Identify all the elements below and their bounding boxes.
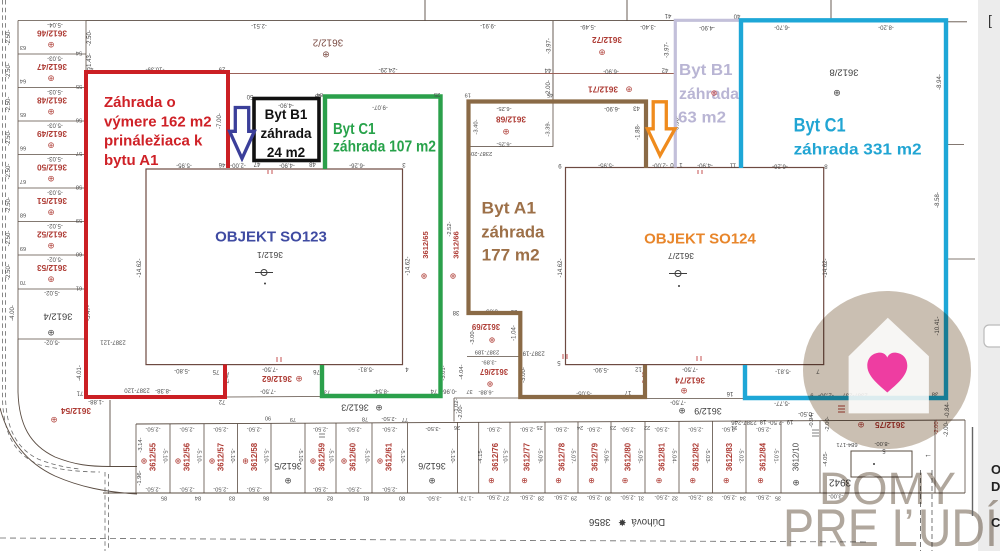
svg-text:-6.70-: -6.70- <box>774 24 790 30</box>
svg-text:34: 34 <box>740 495 746 501</box>
svg-text:-2.50-: -2.50- <box>145 486 160 492</box>
svg-text:-5.04-: -5.04- <box>671 448 677 463</box>
svg-text:-5.77-: -5.77- <box>774 400 790 406</box>
svg-text:3612/59: 3612/59 <box>318 442 327 471</box>
svg-text:3612/9: 3612/9 <box>694 406 722 416</box>
svg-text:85: 85 <box>161 495 167 501</box>
svg-text:35: 35 <box>775 495 781 501</box>
svg-text:-2.50-: -2.50- <box>6 264 12 280</box>
svg-text:⊕: ⊕ <box>242 457 249 466</box>
svg-text:-2.50-: -2.50- <box>313 486 328 492</box>
svg-text:3612/61: 3612/61 <box>385 442 394 471</box>
svg-text:3612/46: 3612/46 <box>37 29 67 39</box>
svg-text:75: 75 <box>212 368 219 374</box>
svg-text:-1.04-: -1.04- <box>512 325 518 341</box>
svg-text:⊕: ⊕ <box>689 476 696 485</box>
svg-text:Záhrada o: Záhrada o <box>104 94 176 111</box>
svg-text:Dúhová ✸ 3856: Dúhová ✸ 3856 <box>588 516 665 527</box>
svg-text:3612/10: 3612/10 <box>792 442 801 471</box>
svg-text:3612/83: 3612/83 <box>725 442 734 471</box>
svg-text:3612/81: 3612/81 <box>658 442 667 471</box>
svg-text:64: 64 <box>20 78 26 84</box>
svg-text:3612/47: 3612/47 <box>37 62 67 72</box>
svg-text:-2.00-: -2.00- <box>230 162 246 168</box>
svg-text:záhrada: záhrada <box>481 223 545 242</box>
svg-text:-2.52-: -2.52- <box>447 221 453 236</box>
svg-text:67: 67 <box>20 178 26 184</box>
svg-text:3612/60: 3612/60 <box>349 442 358 471</box>
svg-text:-2.50-: -2.50- <box>213 486 228 492</box>
svg-text:-8.38-: -8.38- <box>155 387 171 393</box>
svg-text:26: 26 <box>454 424 460 430</box>
svg-text:Byt C1: Byt C1 <box>794 116 846 137</box>
svg-text:57: 57 <box>76 150 82 156</box>
svg-text:záhrada 331 m2: záhrada 331 m2 <box>794 142 922 159</box>
svg-text:3612/52: 3612/52 <box>37 230 67 240</box>
svg-text:3612/71: 3612/71 <box>588 85 618 95</box>
svg-text:-5.81-: -5.81- <box>358 366 374 372</box>
svg-text:⊕: ⊕ <box>502 127 509 137</box>
svg-text:3612/48: 3612/48 <box>37 96 67 106</box>
svg-text:-5.10-: -5.10- <box>399 448 405 463</box>
svg-text:Byt A1: Byt A1 <box>482 199 537 218</box>
svg-text:38: 38 <box>452 309 459 315</box>
svg-text:24 m2: 24 m2 <box>267 145 305 160</box>
svg-text:-8.94-: -8.94- <box>937 74 943 90</box>
svg-text:-5.81-: -5.81- <box>775 368 791 374</box>
svg-text:⊕: ⊕ <box>141 457 148 466</box>
svg-text:-2.50-: -2.50- <box>620 494 635 500</box>
svg-text:37: 37 <box>466 388 472 394</box>
svg-text:-3.40-: -3.40- <box>473 119 479 134</box>
svg-text:-2.51-: -2.51- <box>251 22 267 28</box>
svg-text:19: 19 <box>465 91 471 97</box>
svg-text:-5.01-: -5.01- <box>773 448 779 463</box>
svg-text:-5.02-: -5.02- <box>44 289 60 295</box>
svg-text:C: C <box>991 515 1000 530</box>
svg-text:-5.03-: -5.03- <box>47 88 63 94</box>
svg-text:-2.50-: -2.50- <box>247 425 262 431</box>
svg-text:3612/56: 3612/56 <box>183 442 192 471</box>
svg-text:-2.50-: -2.50- <box>756 425 771 431</box>
svg-text:44: 44 <box>544 67 551 73</box>
svg-text:3612/80: 3612/80 <box>624 442 633 471</box>
svg-text:⊕: ⊕ <box>47 174 54 184</box>
svg-text:-2.50-: -2.50- <box>6 164 12 180</box>
svg-text:⊕: ⊕ <box>792 478 799 488</box>
svg-text:-5.10-: -5.10- <box>196 448 202 463</box>
svg-text:-2.50-: -2.50- <box>6 231 12 247</box>
svg-text:-2.50-: -2.50- <box>381 415 396 421</box>
svg-text:-3.40-: -3.40- <box>640 23 656 29</box>
svg-text:-4.90-: -4.90- <box>279 162 295 168</box>
svg-text:-2.50-: -2.50- <box>346 486 361 492</box>
svg-text:-4.01-: -4.01- <box>77 365 83 381</box>
svg-text:3612/77: 3612/77 <box>523 443 532 471</box>
svg-text:55: 55 <box>76 83 82 89</box>
svg-text:prináležiaca k: prináležiaca k <box>104 133 203 150</box>
svg-text:-1.96-: -1.96- <box>137 470 143 485</box>
svg-text:⊕: ⊕ <box>487 380 494 389</box>
svg-text:63: 63 <box>20 44 26 50</box>
svg-text:⊕: ⊕ <box>375 403 382 413</box>
svg-text:⊕: ⊕ <box>209 457 216 466</box>
svg-text:⊕: ⊕ <box>680 386 687 396</box>
svg-text:⊕: ⊕ <box>588 476 595 485</box>
svg-text:41: 41 <box>664 12 671 18</box>
svg-text:-5.90-: -5.90- <box>593 366 609 372</box>
svg-text:⊕: ⊕ <box>47 40 54 50</box>
svg-text:3612/4: 3612/4 <box>43 311 72 322</box>
svg-text:69: 69 <box>20 245 26 251</box>
svg-text:⊕: ⊕ <box>47 328 54 338</box>
svg-text:-14.62-: -14.62- <box>823 258 829 277</box>
svg-text:⊕: ⊕ <box>428 476 435 486</box>
svg-text:23: 23 <box>610 424 616 430</box>
svg-text:-5.09-: -5.09- <box>537 448 543 463</box>
svg-text:-2.00-: -2.00- <box>652 162 668 168</box>
svg-text:-5.05-: -5.05- <box>576 390 592 396</box>
svg-text:60: 60 <box>76 251 82 257</box>
svg-text:-14.62-: -14.62- <box>558 258 564 277</box>
svg-text:3612/54: 3612/54 <box>61 406 91 416</box>
svg-text:3612/65: 3612/65 <box>421 231 430 259</box>
svg-text:-6.25-: -6.25- <box>496 105 511 111</box>
svg-text:-2.50-: -2.50- <box>554 425 569 431</box>
svg-text:25: 25 <box>536 424 542 430</box>
svg-text:177 m2: 177 m2 <box>482 246 540 265</box>
svg-text:-3.50-: -3.50- <box>426 494 441 500</box>
svg-text:90: 90 <box>265 415 271 421</box>
svg-text:-2.50-: -2.50- <box>587 494 602 500</box>
svg-text:21: 21 <box>731 424 737 430</box>
svg-text:⊕: ⊕ <box>656 476 663 485</box>
svg-text:-2.50-: -2.50- <box>6 197 12 213</box>
svg-text:77: 77 <box>402 416 408 422</box>
svg-text:3612/57: 3612/57 <box>217 443 226 471</box>
svg-text:3612/58: 3612/58 <box>250 442 259 471</box>
svg-text:-2.50-: -2.50- <box>382 425 397 431</box>
svg-text:O: O <box>991 462 1000 477</box>
svg-text:-2.50-: -2.50- <box>487 425 502 431</box>
svg-text:66: 66 <box>20 145 26 151</box>
svg-text:2387-189: 2387-189 <box>475 349 500 355</box>
svg-text:-5.06-: -5.06- <box>603 448 609 463</box>
svg-text:-7.50-: -7.50- <box>670 399 686 405</box>
svg-text:3612/7: 3612/7 <box>668 251 694 261</box>
svg-text:71: 71 <box>76 390 83 396</box>
svg-text:⊕: ⊕ <box>284 476 291 486</box>
svg-text:⊕: ⊕ <box>625 85 632 95</box>
svg-text:3612/62: 3612/62 <box>262 374 292 384</box>
svg-text:-3.14-: -3.14- <box>138 437 144 452</box>
svg-text:82: 82 <box>327 495 333 501</box>
svg-text:-2.50-: -2.50- <box>6 63 12 79</box>
svg-text:-5.80-: -5.80- <box>174 367 190 373</box>
svg-text:-6.25-: -6.25- <box>496 141 511 147</box>
svg-text:-5.10-: -5.10- <box>162 448 168 463</box>
svg-text:-8.54-: -8.54- <box>373 388 389 394</box>
svg-text:⊕: ⊕ <box>322 50 330 60</box>
svg-text:40: 40 <box>733 13 740 19</box>
svg-text:-5.02-: -5.02- <box>47 222 63 228</box>
svg-text:záhrada: záhrada <box>260 126 312 141</box>
svg-text:-6.90-: -6.90- <box>604 105 620 111</box>
svg-text:⊕: ⊕ <box>488 476 495 485</box>
svg-text:-0.96-: -0.96- <box>441 388 457 394</box>
svg-text:-2.50-: -2.50- <box>6 130 12 146</box>
svg-text:⊕: ⊕ <box>598 48 605 58</box>
svg-text:⊕: ⊕ <box>310 457 317 466</box>
svg-text:3612/3: 3612/3 <box>341 403 369 413</box>
svg-text:-2.50-: -2.50- <box>179 486 194 492</box>
svg-text:-2.50-: -2.50- <box>382 486 397 492</box>
svg-text:70: 70 <box>20 279 26 285</box>
svg-text:-7.50-: -7.50- <box>260 388 276 394</box>
svg-text:-6.90-: -6.90- <box>603 68 619 74</box>
svg-text:3612/2: 3612/2 <box>312 37 343 48</box>
svg-text:-5.10-: -5.10- <box>297 448 303 463</box>
svg-text:46: 46 <box>218 161 225 167</box>
svg-text:záhrada: záhrada <box>679 86 739 103</box>
svg-text:-5.95-: -5.95- <box>176 162 192 168</box>
svg-text:-2.50-: -2.50- <box>768 419 784 425</box>
svg-text:-2.00-: -2.00- <box>458 404 464 419</box>
svg-text:⊕: ⊕ <box>678 406 685 416</box>
svg-text:2387-197: 2387-197 <box>519 350 545 356</box>
svg-text:-3.50-: -3.50- <box>425 425 440 431</box>
svg-text:OBJEKT SO123: OBJEKT SO123 <box>215 229 327 246</box>
svg-text:61: 61 <box>76 285 82 291</box>
svg-text:-2.50-: -2.50- <box>487 494 502 500</box>
svg-text:43: 43 <box>633 105 640 111</box>
svg-text:-2.50-: -2.50- <box>313 425 328 431</box>
svg-text:-2.50-: -2.50- <box>6 97 12 113</box>
svg-text:-7.50-: -7.50- <box>262 366 278 372</box>
svg-text:-5.03-: -5.03- <box>47 122 63 128</box>
svg-text:-2.50-: -2.50- <box>179 425 194 431</box>
svg-text:3612/67: 3612/67 <box>480 367 508 376</box>
svg-text:-14.62-: -14.62- <box>406 256 412 275</box>
svg-text:Byt C1: Byt C1 <box>333 121 376 138</box>
svg-text:16: 16 <box>726 390 733 396</box>
svg-text:⊕: ⊕ <box>555 476 562 485</box>
svg-text:-4.04-: -4.04- <box>459 364 465 379</box>
svg-text:11: 11 <box>729 162 736 168</box>
svg-text:-5.03-: -5.03- <box>704 448 710 463</box>
svg-text:⊕: ⊕ <box>341 457 348 466</box>
svg-text:⊕: ⊕ <box>723 476 730 485</box>
svg-text:-5.07-: -5.07- <box>570 448 576 463</box>
svg-text:74: 74 <box>430 388 437 394</box>
svg-text:-5.03-: -5.03- <box>47 189 63 195</box>
svg-text:-4.90-: -4.90- <box>278 102 294 108</box>
svg-text:-3.39-: -3.39- <box>545 121 551 136</box>
svg-text:-2.50-: -2.50- <box>722 494 737 500</box>
svg-text:3612/76: 3612/76 <box>491 442 500 471</box>
svg-text:24: 24 <box>577 424 583 430</box>
svg-text:-3.97-: -3.97- <box>547 38 553 54</box>
svg-text:⊕: ⊕ <box>489 336 496 345</box>
svg-text:Byt B1: Byt B1 <box>265 107 308 122</box>
svg-text:-2.50-: -2.50- <box>520 494 535 500</box>
svg-text:-2.50-: -2.50- <box>587 425 602 431</box>
svg-text:59: 59 <box>76 217 82 223</box>
svg-text:-1.88-: -1.88- <box>636 124 642 140</box>
svg-text:-4.90-: -4.90- <box>697 162 713 168</box>
svg-text:27: 27 <box>503 495 509 501</box>
svg-text:výmere 162 m2: výmere 162 m2 <box>104 113 212 130</box>
svg-text:29: 29 <box>571 495 577 501</box>
svg-text:56: 56 <box>76 117 82 123</box>
svg-text:-5.05-: -5.05- <box>637 448 643 463</box>
svg-text:PRE ĽUDÍ: PRE ĽUDÍ <box>783 499 998 551</box>
svg-text:58: 58 <box>76 184 82 190</box>
svg-text:⊕: ⊕ <box>50 415 57 425</box>
svg-text:⊕: ⊕ <box>757 476 764 485</box>
svg-text:-5.95-: -5.95- <box>598 162 614 168</box>
svg-text:22: 22 <box>644 424 650 430</box>
svg-text:-5.02-: -5.02- <box>47 256 63 262</box>
svg-text:17: 17 <box>624 389 631 395</box>
svg-text:-7.50-: -7.50- <box>682 366 698 372</box>
svg-text:76: 76 <box>313 368 320 374</box>
svg-text:25: 25 <box>434 91 440 97</box>
svg-text:3612/72: 3612/72 <box>592 35 622 45</box>
svg-text:64: 64 <box>317 91 323 97</box>
svg-text:79: 79 <box>290 416 296 422</box>
svg-text:-8.20-: -8.20- <box>878 24 894 30</box>
svg-text:3612/84: 3612/84 <box>759 442 768 471</box>
svg-text:32: 32 <box>672 495 678 501</box>
svg-text:-5.03-: -5.03- <box>47 155 63 161</box>
svg-text:-5.03-: -5.03- <box>47 55 63 61</box>
svg-text:3612/8: 3612/8 <box>829 67 858 78</box>
svg-text:⊕: ⊕ <box>833 88 841 98</box>
svg-text:63 m2: 63 m2 <box>678 110 726 127</box>
svg-text:-9.91-: -9.91- <box>480 22 496 28</box>
svg-text:-3.97-: -3.97- <box>665 42 671 58</box>
svg-text:-2.50-: -2.50- <box>87 30 93 46</box>
svg-text:-2.50-: -2.50- <box>145 425 160 431</box>
svg-text:-2.50-: -2.50- <box>346 425 361 431</box>
svg-text:-5.02-: -5.02- <box>738 448 744 463</box>
svg-text:-7.00-: -7.00- <box>217 113 223 129</box>
svg-text:OBJEKT SO124: OBJEKT SO124 <box>644 231 756 248</box>
svg-text:-5.49-: -5.49- <box>580 23 596 29</box>
svg-text:83: 83 <box>229 495 235 501</box>
svg-text:28: 28 <box>538 495 544 501</box>
svg-text:12: 12 <box>635 366 642 372</box>
svg-text:-6.88-: -6.88- <box>478 389 493 395</box>
svg-text:84: 84 <box>195 495 201 501</box>
svg-text:-2.50-: -2.50- <box>6 30 12 46</box>
svg-text:81: 81 <box>363 495 369 501</box>
svg-text:31: 31 <box>638 495 644 501</box>
svg-text:-5.02-: -5.02- <box>44 339 60 345</box>
svg-text:-2.50-: -2.50- <box>654 425 669 431</box>
svg-text:3612/68: 3612/68 <box>496 115 526 125</box>
svg-text:-9.07-: -9.07- <box>372 104 388 110</box>
svg-text:⊕: ⊕ <box>47 141 54 151</box>
svg-text:80: 80 <box>399 495 405 501</box>
svg-text:D: D <box>991 479 1000 494</box>
svg-text:⊕: ⊕ <box>47 74 54 84</box>
svg-text:-0.94-: -0.94- <box>809 412 815 427</box>
svg-text:-2.50-: -2.50- <box>247 486 262 492</box>
svg-text:-1.73-: -1.73- <box>458 494 473 500</box>
svg-text:3612/82: 3612/82 <box>692 442 701 471</box>
svg-text:-5.04-: -5.04- <box>47 21 63 27</box>
svg-text:-4.00-: -4.00- <box>10 305 16 321</box>
svg-text:-5.10-: -5.10- <box>328 448 334 463</box>
svg-text:-2.50-: -2.50- <box>654 494 669 500</box>
svg-text:-2.50-: -2.50- <box>620 425 635 431</box>
svg-text:-2.50-: -2.50- <box>554 494 569 500</box>
svg-text:3612/55: 3612/55 <box>149 442 158 471</box>
svg-text:→: → <box>924 453 932 462</box>
svg-text:⊕: ⊕ <box>295 374 302 384</box>
svg-text:-2.50-: -2.50- <box>688 494 703 500</box>
svg-text:-5.10-: -5.10- <box>263 448 269 463</box>
svg-text:-2.50-: -2.50- <box>213 425 228 431</box>
svg-text:54: 54 <box>76 50 82 56</box>
svg-text:[: [ <box>988 12 992 28</box>
svg-text:68: 68 <box>20 212 26 218</box>
svg-text:⊕: ⊕ <box>622 476 629 485</box>
svg-text:⊕: ⊕ <box>450 272 457 281</box>
svg-text:-5.10-: -5.10- <box>229 448 235 463</box>
svg-text:-2.50-: -2.50- <box>756 494 771 500</box>
svg-text:-8.58-: -8.58- <box>935 192 941 208</box>
svg-text:65: 65 <box>20 111 26 117</box>
svg-text:-3.00-: -3.00- <box>470 329 476 344</box>
svg-text:3612/50: 3612/50 <box>37 163 67 173</box>
svg-text:3612/78: 3612/78 <box>558 442 567 471</box>
svg-text:3612/79: 3612/79 <box>591 442 600 471</box>
svg-text:-4.15-: -4.15- <box>478 448 484 463</box>
svg-text:2387-120: 2387-120 <box>124 387 150 393</box>
svg-text:30: 30 <box>605 495 611 501</box>
svg-text:-5.10-: -5.10- <box>449 448 455 463</box>
svg-text:42: 42 <box>661 67 668 73</box>
svg-text:Byt B1: Byt B1 <box>679 62 733 79</box>
svg-text:-6.26-: -6.26- <box>349 162 365 168</box>
svg-text:-5.10-: -5.10- <box>364 448 370 463</box>
svg-text:⊕: ⊕ <box>47 275 54 285</box>
svg-text:3612/1: 3612/1 <box>257 250 283 260</box>
svg-text:-2.50-: -2.50- <box>688 425 703 431</box>
svg-text:2387-121: 2387-121 <box>100 339 126 345</box>
svg-text:3612/74: 3612/74 <box>675 376 705 386</box>
svg-text:3612/53: 3612/53 <box>37 263 67 273</box>
svg-text:⊕: ⊕ <box>47 208 54 218</box>
svg-text:2387-209: 2387-209 <box>468 150 493 156</box>
svg-text:-24.29-: -24.29- <box>378 66 397 72</box>
svg-text:3612/49: 3612/49 <box>37 129 67 139</box>
svg-text:-14.62-: -14.62- <box>137 258 143 277</box>
svg-text:⊕: ⊕ <box>175 457 182 466</box>
svg-text:86: 86 <box>263 495 269 501</box>
svg-text:-1.43-: -1.43- <box>87 53 93 69</box>
svg-text:⊕: ⊕ <box>47 107 54 117</box>
svg-text:-5.10-: -5.10- <box>502 448 508 463</box>
svg-text:-4.90-: -4.90- <box>699 24 715 30</box>
svg-text:3612/51: 3612/51 <box>37 196 67 206</box>
svg-text:-3.89-: -3.89- <box>481 359 496 365</box>
svg-text:záhrada 107 m2: záhrada 107 m2 <box>333 139 436 156</box>
svg-text:-6.26-: -6.26- <box>772 162 788 168</box>
